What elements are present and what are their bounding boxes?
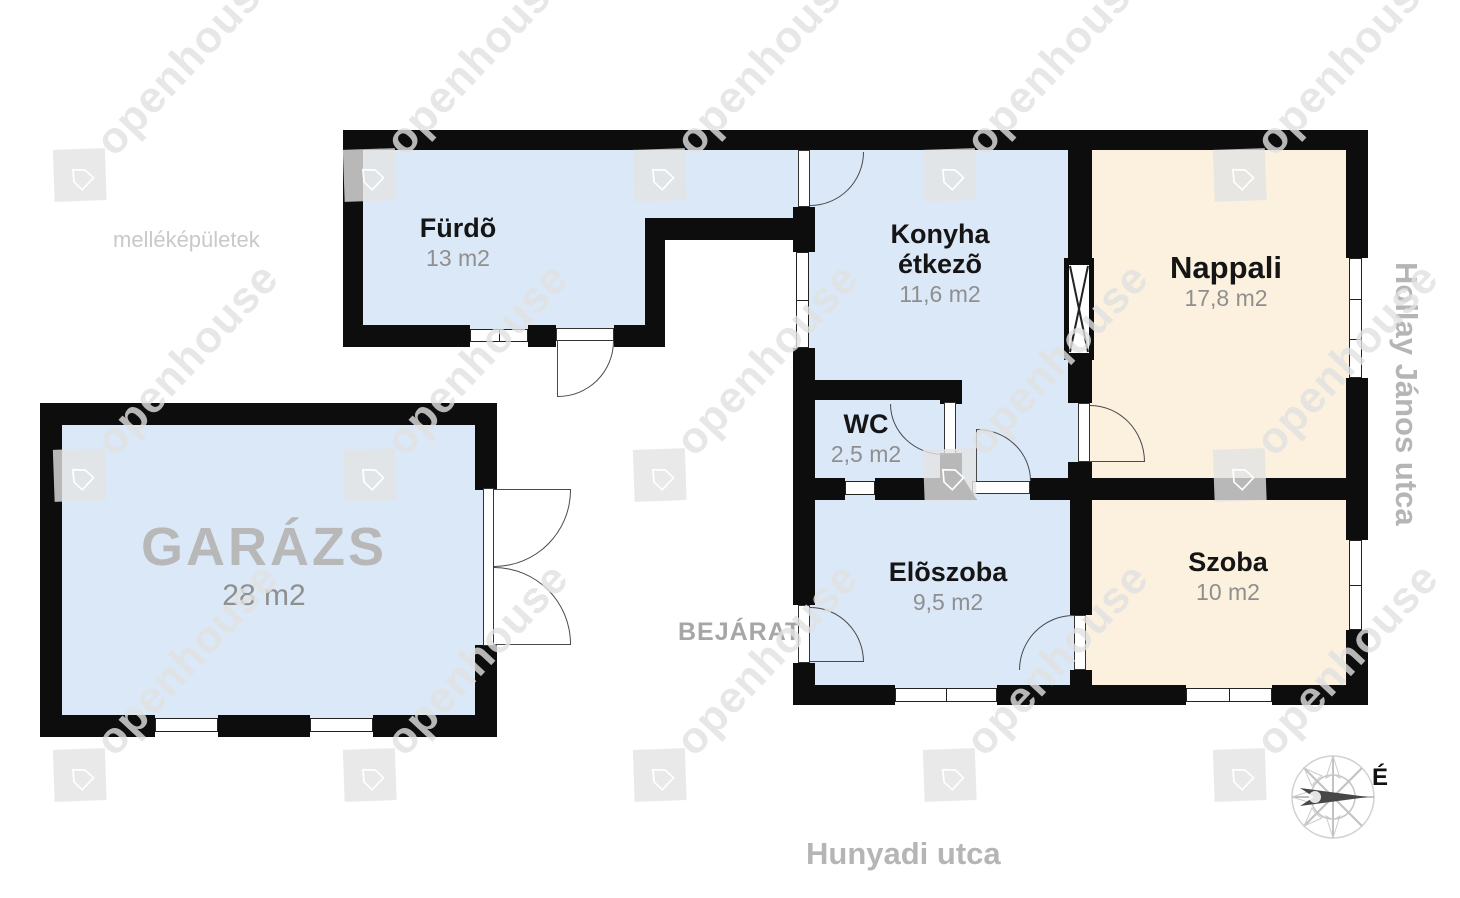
window-konyha-left	[796, 252, 809, 348]
door-leaf-garage-bottom	[494, 644, 571, 645]
wall-garage-left	[40, 403, 62, 737]
compass-rose-icon	[1288, 752, 1378, 842]
wall-right-a	[1346, 130, 1368, 258]
window-furdo-bottom	[470, 329, 528, 342]
room-name-wc: WC	[831, 409, 901, 439]
room-area-wc: 2,5 m2	[831, 439, 901, 469]
wall-right-b	[1346, 378, 1368, 540]
door-frame-garage	[483, 488, 494, 646]
wall-bottom-1	[793, 685, 895, 705]
wall-top	[343, 130, 1368, 150]
floor-plan: Fürdõ 13 m2 Konyha étkezõ 11,6 m2 Nappal…	[0, 0, 1460, 898]
wall-wc-right-a	[940, 380, 962, 404]
window-szoba-bottom	[1186, 688, 1272, 702]
wall-bottom-2	[997, 685, 1186, 705]
wall-eloszoba-szoba-a	[1070, 500, 1092, 615]
openhouse-logo-icon: ⌂	[53, 748, 107, 802]
wall-garage-bottom-2	[218, 715, 310, 737]
openhouse-logo-icon: ⌂	[343, 748, 397, 802]
room-area-eloszoba: 9,5 m2	[889, 587, 1008, 617]
wall-konyha-nappali-a	[1068, 150, 1092, 262]
room-name-furdo: Fürdõ	[420, 213, 496, 243]
door-frame-konyha	[798, 150, 810, 207]
room-fill-furdo	[353, 140, 655, 335]
room-label-furdo: Fürdõ 13 m2	[420, 213, 496, 273]
room-area-szoba: 10 m2	[1188, 577, 1268, 607]
wall-nappali-szoba	[1068, 478, 1368, 500]
room-name-eloszoba: Elõszoba	[889, 557, 1008, 587]
wall-konyha-nappali-b	[1068, 358, 1092, 403]
street-name-bottom: Hunyadi utca	[806, 836, 1001, 872]
door-frame-szoba	[1074, 615, 1086, 670]
door-arc-furdo	[558, 341, 614, 397]
room-name-nappali: Nappali	[1170, 253, 1282, 283]
room-name-konyha-line2: étkezõ	[890, 249, 989, 279]
chimney-x-icon	[1069, 265, 1089, 353]
room-label-nappali: Nappali 17,8 m2	[1170, 253, 1282, 313]
room-name-konyha-line1: Konyha	[890, 219, 989, 249]
wall-garage-right-b	[475, 645, 497, 737]
window-eloszoba-bottom	[895, 688, 997, 702]
street-name-right: Hollay János utca	[1388, 262, 1424, 526]
north-label: É	[1372, 764, 1388, 792]
wall-eloszoba-top-1	[793, 478, 845, 500]
door-frame-wc	[944, 402, 956, 454]
window-szoba-right	[1349, 540, 1362, 630]
window-wc-internal	[845, 481, 875, 495]
wall-konyha-nappali-c	[1068, 462, 1092, 478]
door-frame-furdo	[556, 328, 614, 341]
entrance-label: BEJÁRAT	[678, 618, 801, 647]
window-garage-bottom-1	[155, 718, 218, 732]
openhouse-logo-icon: ⌂	[633, 448, 687, 502]
wall-garage-top	[40, 403, 497, 425]
wall-furdo-bottom-2	[528, 325, 556, 347]
room-label-wc: WC 2,5 m2	[831, 409, 901, 469]
wall-garage-right-a	[475, 403, 497, 490]
room-name-garazs: GARÁZS	[141, 519, 387, 575]
wall-furdo-bottom-1	[343, 325, 470, 347]
door-frame-corridor	[972, 481, 1030, 494]
openhouse-logo-icon: ⌂	[53, 148, 107, 202]
window-nappali-right	[1349, 258, 1362, 378]
room-area-konyha: 11,6 m2	[890, 279, 989, 309]
wall-garage-bottom-1	[40, 715, 155, 737]
room-area-garazs: 28 m2	[141, 575, 387, 617]
openhouse-logo-icon: ⌂	[923, 748, 977, 802]
room-label-garazs: GARÁZS 28 m2	[141, 519, 387, 617]
door-frame-nappali	[1078, 403, 1090, 462]
room-area-nappali: 17,8 m2	[1170, 283, 1282, 313]
door-arc-garage-top	[494, 490, 571, 567]
room-area-furdo: 13 m2	[420, 243, 496, 273]
wall-wing-left-3	[793, 500, 815, 605]
wall-step-horizontal	[645, 218, 815, 240]
outbuildings-label: melléképületek	[113, 227, 260, 253]
openhouse-logo-icon: ⌂	[1213, 748, 1267, 802]
door-arc-garage-bottom	[494, 567, 571, 644]
room-label-szoba: Szoba 10 m2	[1188, 547, 1268, 607]
wall-wing-left-1	[793, 207, 815, 252]
wall-furdo-left	[343, 130, 363, 347]
watermark: ⌂openhouse	[43, 0, 290, 212]
openhouse-logo-icon: ⌂	[633, 748, 687, 802]
room-label-eloszoba: Elõszoba 9,5 m2	[889, 557, 1008, 617]
room-name-szoba: Szoba	[1188, 547, 1268, 577]
room-label-konyha: Konyha étkezõ 11,6 m2	[890, 219, 989, 309]
wall-right-c	[1346, 630, 1368, 705]
window-garage-bottom-2	[310, 718, 373, 732]
